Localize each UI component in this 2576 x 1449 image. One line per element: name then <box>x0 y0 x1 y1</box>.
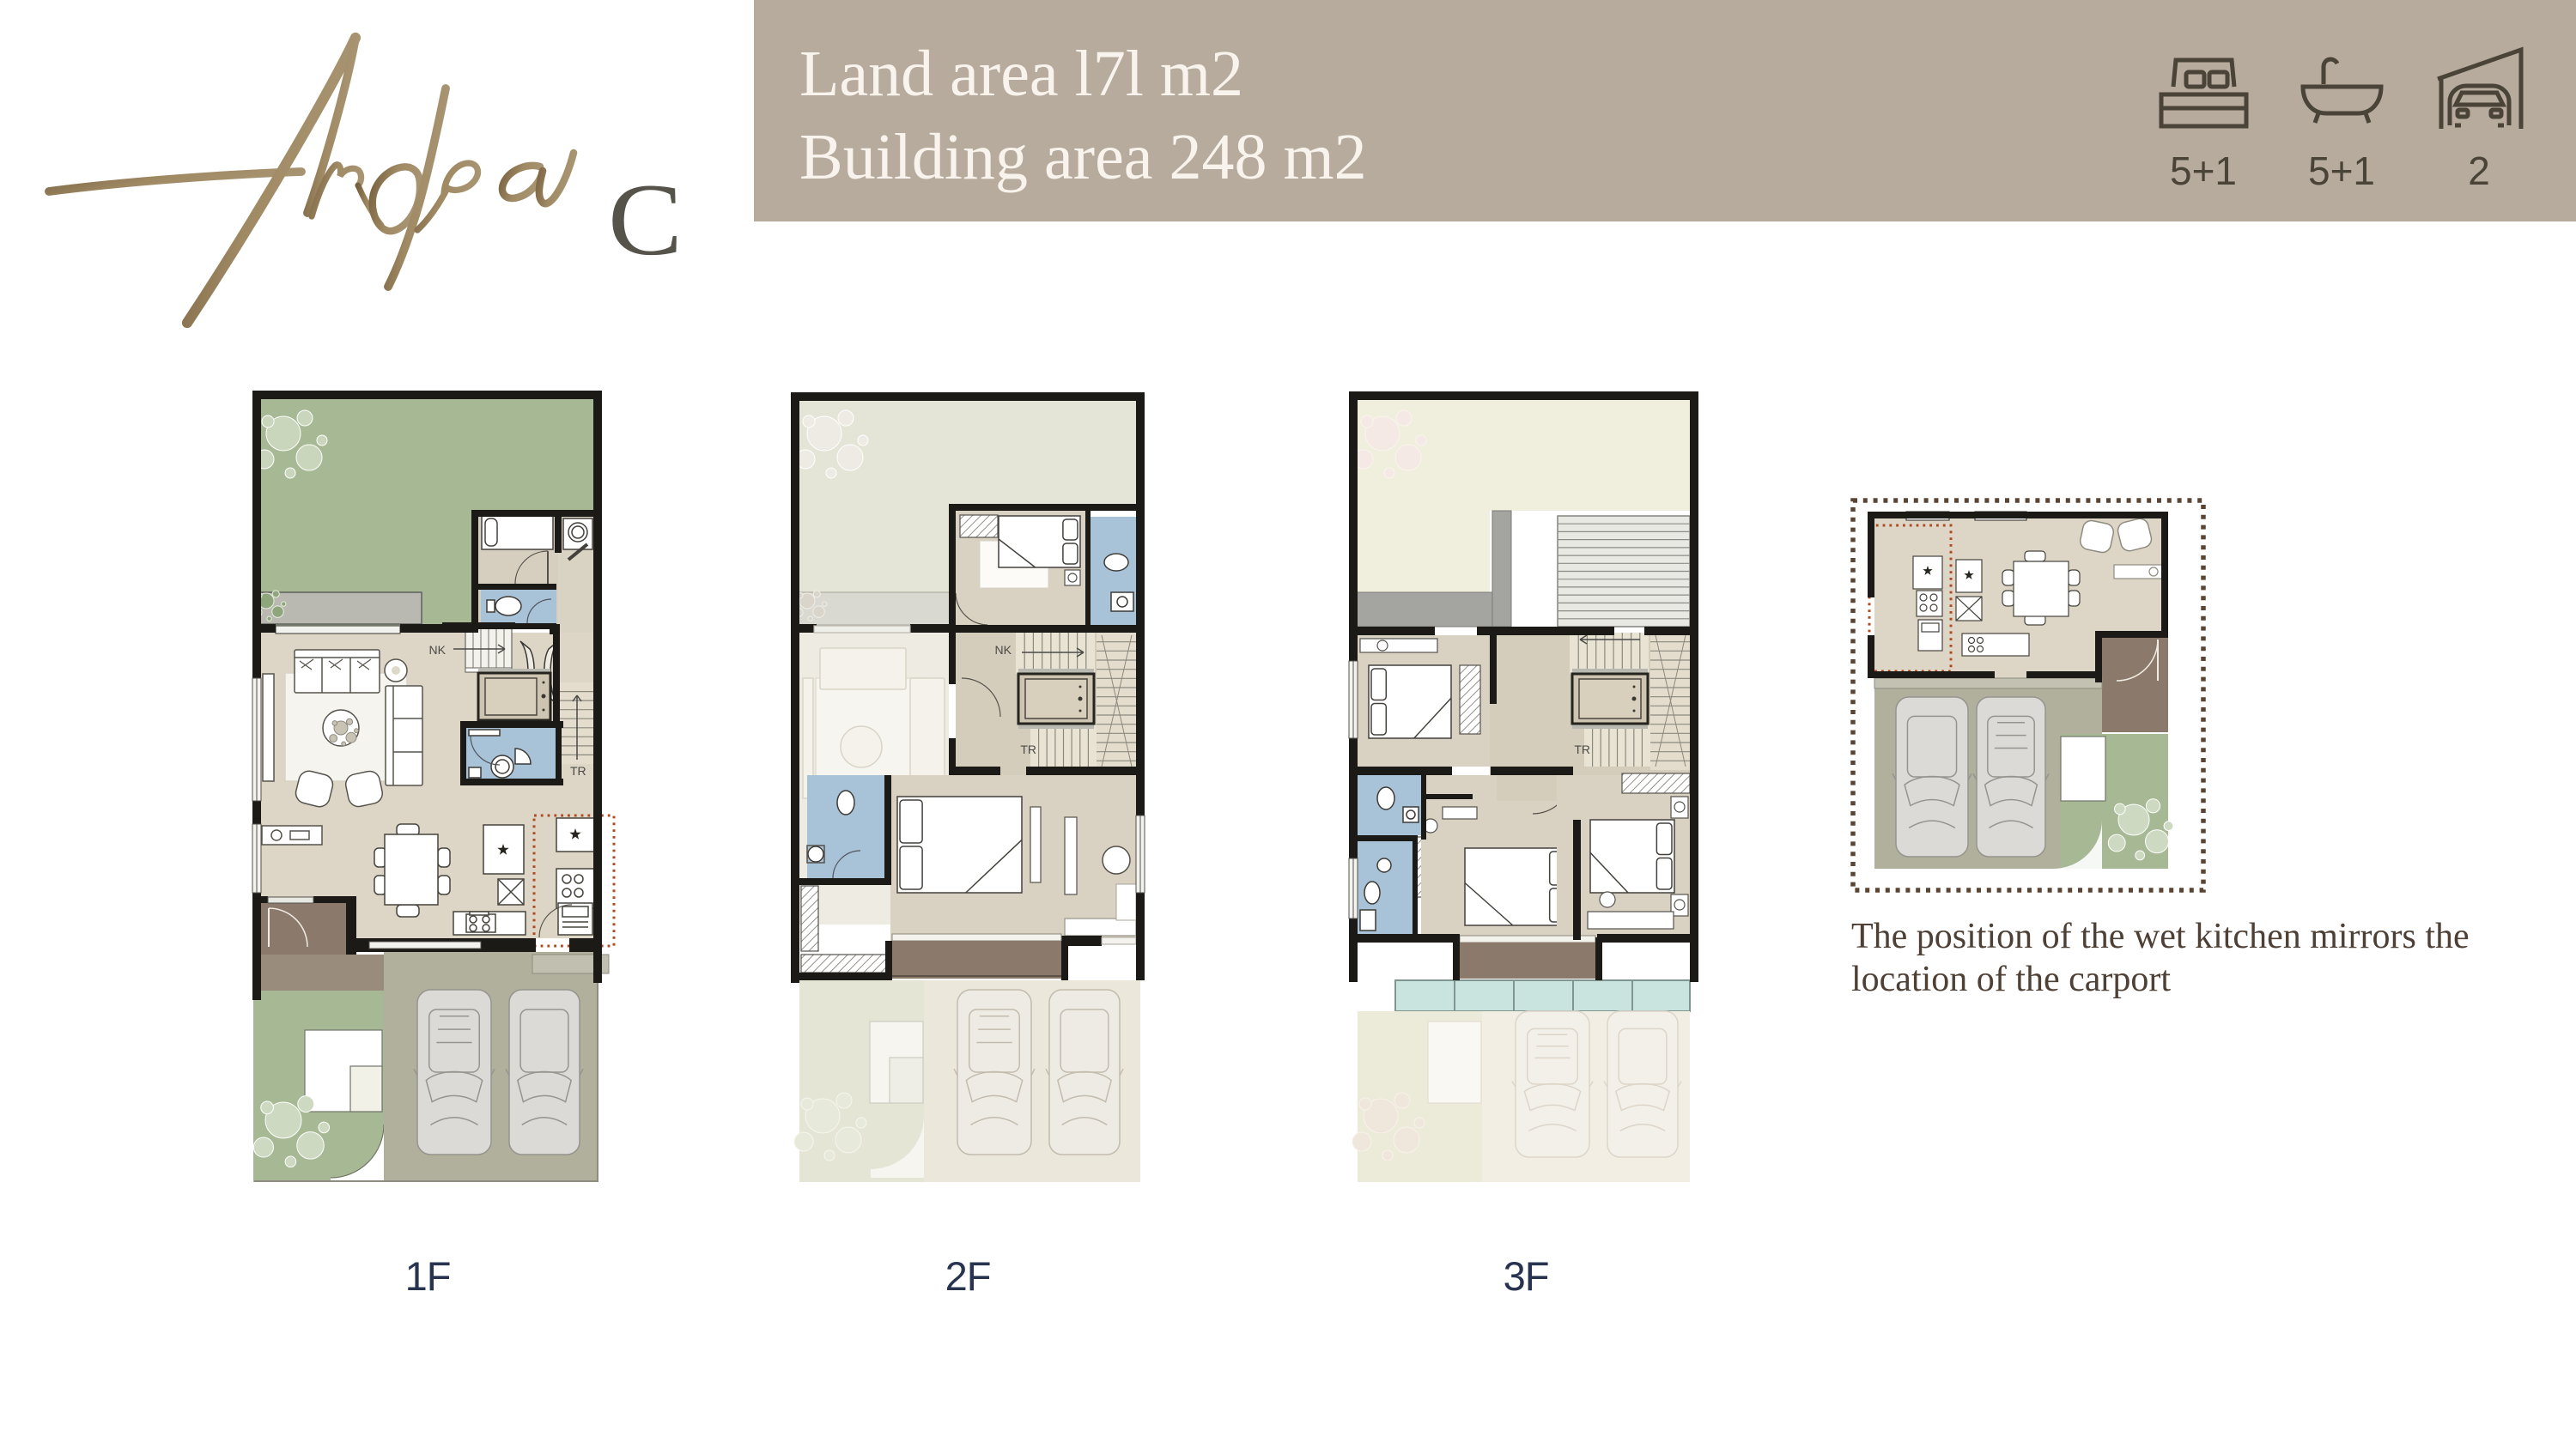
svg-text:TR: TR <box>1020 743 1036 756</box>
svg-text:TR: TR <box>1574 743 1590 756</box>
svg-text:2F: 2F <box>945 1253 991 1299</box>
svg-text:NK: NK <box>995 643 1012 657</box>
svg-text:TR: TR <box>570 764 586 778</box>
svg-text:1F: 1F <box>405 1253 451 1299</box>
svg-text:NK: NK <box>429 643 447 657</box>
svg-text:3F: 3F <box>1504 1253 1549 1299</box>
